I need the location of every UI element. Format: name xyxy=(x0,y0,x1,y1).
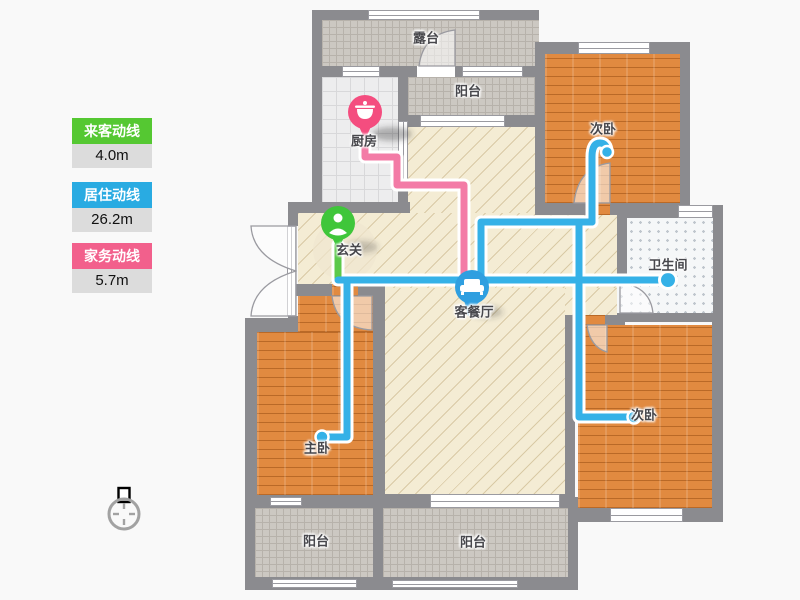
room-label-balcony-bottom-right: 阳台 xyxy=(460,532,486,551)
room-label-master-bedroom: 主卧 xyxy=(304,438,330,457)
room-label-entry: 玄关 xyxy=(336,240,362,259)
route-end-bathroom xyxy=(660,272,677,289)
legend-guest-label: 来客动线 xyxy=(72,118,152,144)
bathroom-door-arc xyxy=(620,283,653,313)
bedroom-bottom-right-door-arc xyxy=(587,325,607,352)
legend-item-guest: 来客动线 4.0m xyxy=(72,118,152,168)
floorplan-app: 露台 阳台 厨房 次卧 玄关 卫生间 客餐厅 主卧 次卧 阳台 阳台 来客动线 … xyxy=(0,0,800,600)
entry-door-arc xyxy=(251,271,296,316)
legend-chore-value: 5.7m xyxy=(72,269,152,293)
route-chore-line xyxy=(365,138,464,284)
entry-door-arc xyxy=(251,226,296,271)
room-label-balcony-bottom-left: 阳台 xyxy=(303,531,329,550)
legend-living-value: 26.2m xyxy=(72,208,152,232)
route-living-line xyxy=(579,222,634,417)
overlay xyxy=(0,0,800,600)
legend-chore-label: 家务动线 xyxy=(72,243,152,269)
legend-item-chore: 家务动线 5.7m xyxy=(72,243,152,293)
pot-icon xyxy=(355,106,375,108)
room-label-terrace: 露台 xyxy=(413,28,439,47)
route-end-bedroom1 xyxy=(601,146,613,158)
room-label-bathroom: 卫生间 xyxy=(648,255,687,274)
legend-living-label: 居住动线 xyxy=(72,182,152,208)
room-label-living: 客餐厅 xyxy=(454,302,493,321)
shadow xyxy=(372,127,412,141)
compass xyxy=(109,488,139,529)
legend-item-living: 居住动线 26.2m xyxy=(72,182,152,232)
room-label-kitchen: 厨房 xyxy=(351,131,377,150)
legend-guest-value: 4.0m xyxy=(72,144,152,168)
room-label-balcony-top: 阳台 xyxy=(455,81,481,100)
room-label-bedroom-bottom-right: 次卧 xyxy=(631,405,657,424)
route-casing xyxy=(579,222,634,417)
person-icon xyxy=(334,214,343,223)
room-label-bedroom-top-right: 次卧 xyxy=(590,119,616,138)
